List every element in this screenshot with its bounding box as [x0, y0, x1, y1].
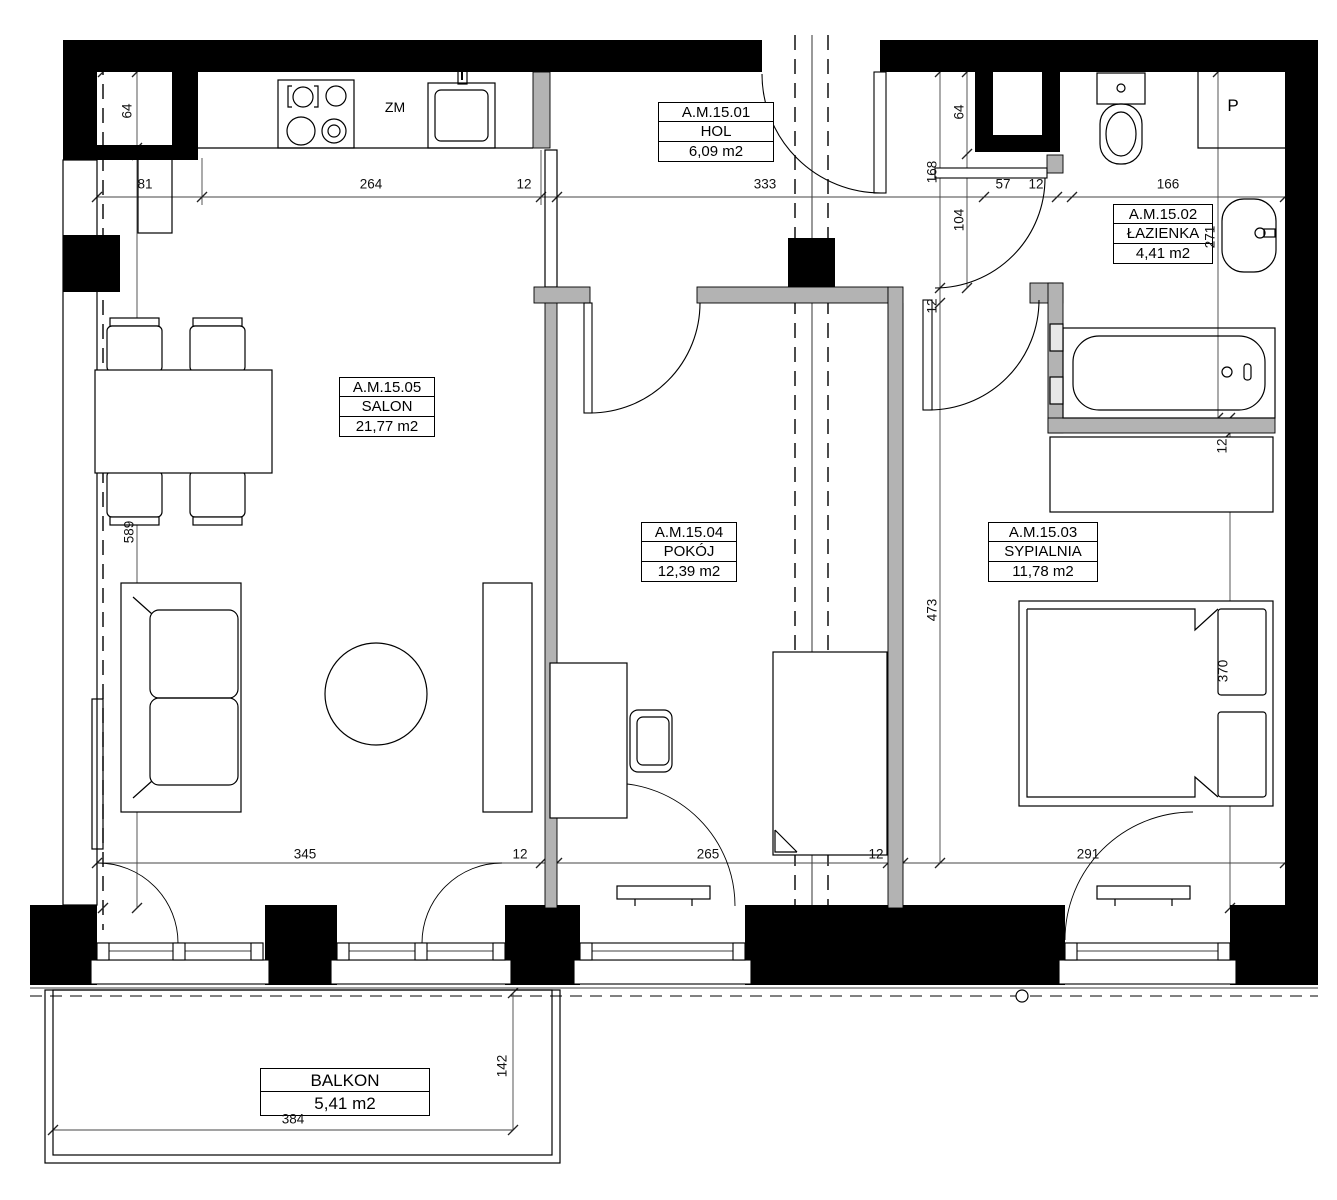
dining-table	[95, 370, 272, 473]
bathroom-door-swing	[935, 178, 1045, 288]
floor-plan-drawing	[0, 0, 1337, 1200]
dim-top-6: 166	[1157, 177, 1180, 192]
room-area: 21,77 m2	[339, 416, 435, 437]
room-id: A.M.15.04	[641, 522, 737, 543]
dim-bottom-3: 12	[868, 847, 883, 862]
dim-top-5: 12	[1028, 177, 1043, 192]
desk	[550, 663, 627, 818]
dim-v-1: 589	[122, 521, 137, 544]
entrance-door-leaf	[874, 72, 886, 193]
pokoj-window-swing	[612, 783, 735, 906]
room-label-sypialnia: A.M.15.03 SYPIALNIA 11,78 m2	[988, 523, 1098, 582]
dim-v-5: 12	[925, 298, 940, 313]
shaft-niche	[993, 72, 1042, 135]
room-id: A.M.15.01	[658, 102, 774, 123]
dim-bottom-0: 345	[294, 847, 317, 862]
desk-chair	[630, 710, 672, 772]
bathtub	[1050, 324, 1275, 418]
room-area: 6,09 m2	[658, 141, 774, 162]
dim-v-3: 64	[952, 104, 967, 119]
room-label-hol: A.M.15.01 HOL 6,09 m2	[658, 103, 774, 162]
dim-balcony-0: 384	[282, 1112, 305, 1127]
pokoj-door-leaf	[584, 303, 592, 413]
dim-v-4: 104	[952, 209, 967, 232]
zm-annotation: ZM	[385, 99, 405, 115]
room-name: HOL	[658, 121, 774, 142]
dim-bottom-1: 12	[512, 847, 527, 862]
balcony-door-swing-right	[422, 863, 502, 943]
dim-v-7: 271	[1203, 226, 1218, 249]
dim-bottom-2: 265	[697, 847, 720, 862]
dim-v-8: 12	[1215, 438, 1230, 453]
dim-bottom-4: 291	[1077, 847, 1100, 862]
entrance-door-swing	[762, 74, 881, 193]
room-name: SYPIALNIA	[988, 541, 1098, 562]
dim-v-10: 142	[495, 1055, 510, 1078]
pokoj-door-swing	[590, 303, 700, 413]
room-name: SALON	[339, 396, 435, 417]
sypialnia-door-swing	[929, 300, 1039, 410]
room-id: A.M.15.03	[988, 522, 1098, 543]
dim-top-1: 264	[360, 177, 383, 192]
pokoj-wardrobe	[773, 652, 887, 855]
sypialnia-wardrobe	[1050, 437, 1273, 512]
sypialnia-door-leaf	[923, 300, 932, 410]
kitchen-cabinet	[138, 155, 172, 233]
room-label-balkon: BALKON 5,41 m2	[260, 1069, 430, 1116]
salon-cabinet	[483, 583, 532, 812]
dim-v-6: 473	[925, 599, 940, 622]
dim-top-0: 81	[137, 177, 152, 192]
room-label-salon: A.M.15.05 SALON 21,77 m2	[339, 378, 435, 437]
room-area: 11,78 m2	[988, 561, 1098, 582]
room-id: A.M.15.05	[339, 377, 435, 398]
dim-top-3: 333	[754, 177, 777, 192]
room-id: A.M.15.02	[1113, 204, 1213, 225]
furniture	[92, 318, 1273, 906]
dim-top-4: 57	[995, 177, 1010, 192]
shaft-p-annotation: P	[1227, 96, 1238, 116]
dim-v-0: 64	[120, 103, 135, 118]
room-name: POKÓJ	[641, 541, 737, 562]
room-area: 12,39 m2	[641, 561, 737, 582]
room-name: BALKON	[260, 1068, 430, 1093]
room-label-pokoj: A.M.15.04 POKÓJ 12,39 m2	[641, 523, 737, 582]
doors	[98, 72, 1193, 943]
dim-v-2: 168	[925, 161, 940, 184]
floor-plan: A.M.15.01 HOL 6,09 m2 A.M.15.02 ŁAZIENKA…	[0, 0, 1337, 1200]
toilet	[1097, 73, 1145, 164]
washbasin	[1222, 199, 1276, 272]
balcony-door-swing-left	[98, 863, 178, 943]
sypialnia-window-swing	[1065, 812, 1193, 940]
sofa	[121, 583, 241, 812]
drain-symbol	[1016, 990, 1028, 1002]
coffee-table	[325, 643, 427, 745]
bed	[1019, 601, 1273, 806]
room-label-lazienka: A.M.15.02 ŁAZIENKA 4,41 m2	[1113, 205, 1213, 264]
room-area: 4,41 m2	[1113, 243, 1213, 264]
room-name: ŁAZIENKA	[1113, 223, 1213, 244]
hob	[278, 80, 354, 148]
dim-v-9: 370	[1216, 660, 1231, 683]
dim-top-2: 12	[516, 177, 531, 192]
